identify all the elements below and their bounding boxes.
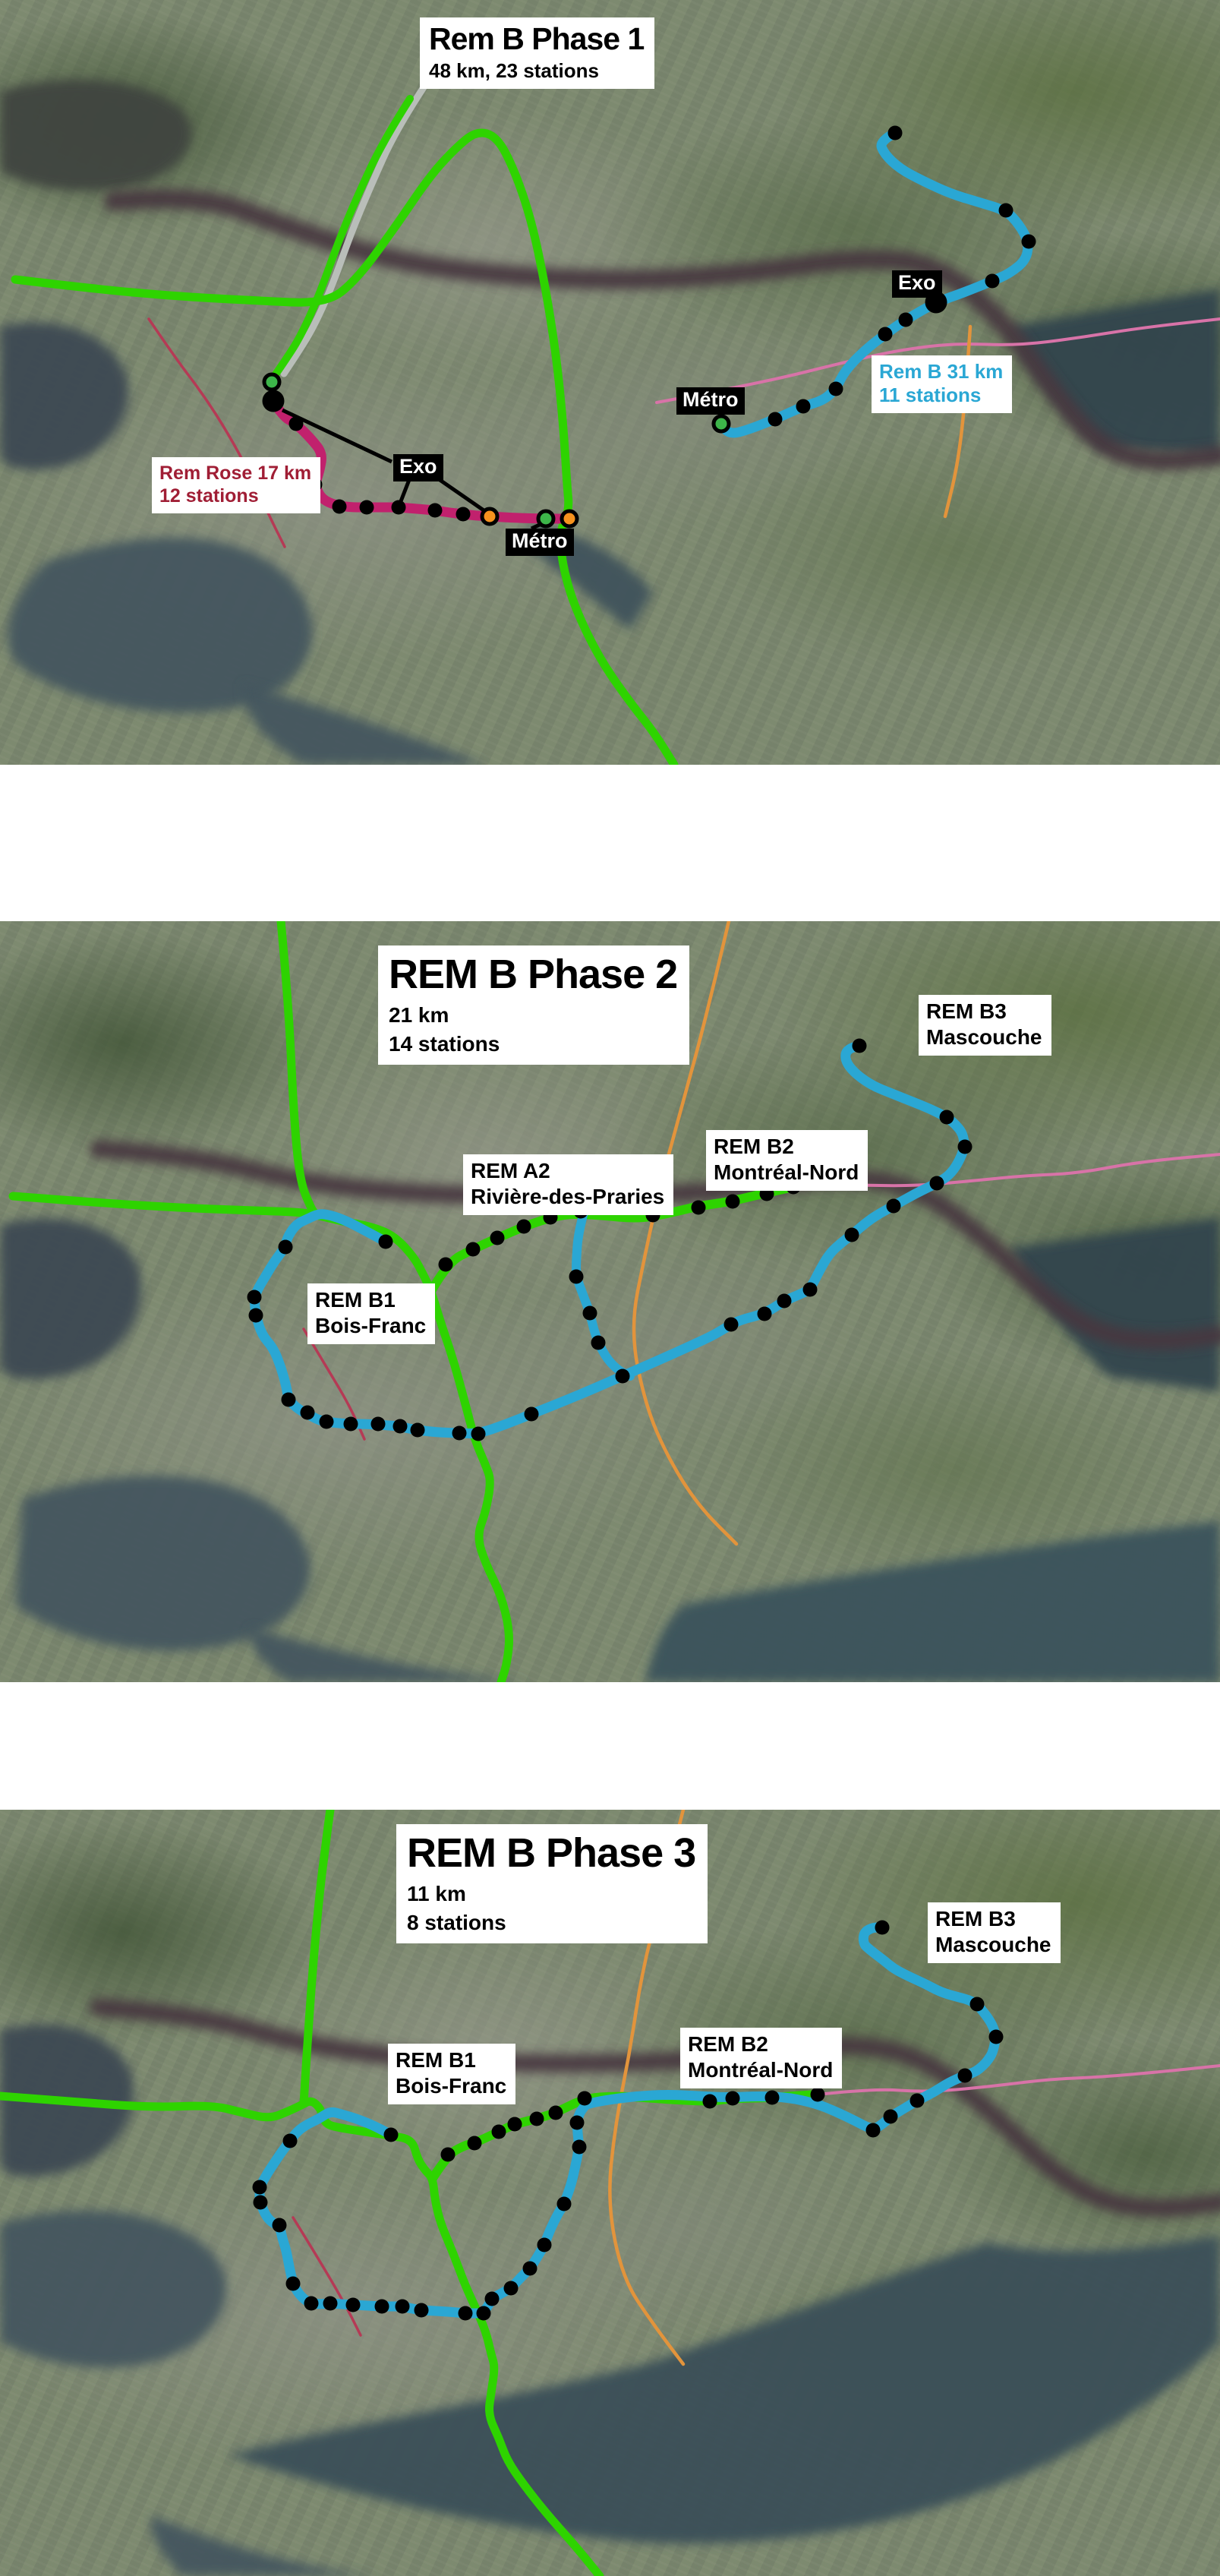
station-dot [254,2196,268,2210]
station-dot [796,399,811,414]
station-dot [466,1242,481,1257]
route-rem-b-cyan-connector [576,1201,630,1376]
station-dot [323,2297,338,2311]
station-dot [468,2136,482,2151]
station-dot [249,1309,263,1323]
station-dot [845,1228,859,1242]
station-dot [591,1336,606,1350]
station-dot [887,1199,901,1214]
label-rem-b2-montreal-nord-line-0: REM B2 [714,1134,859,1160]
label-rem-b-31km-line-1: 11 stations [879,384,1003,407]
station-dot [985,274,1000,289]
label-rem-a2-riviere-des-praries-line-1: Rivière-des-Praries [471,1184,664,1210]
station-dot [333,500,347,514]
label-exo-center: Exo [393,454,443,481]
water-body [15,1476,311,1651]
label-rem-rose-17km: Rem Rose 17 km12 stations [152,457,320,513]
label-rem-b2-montreal-nord: REM B2Montréal-Nord [680,2028,842,2088]
station-dot [777,1294,792,1309]
station-dot [393,1419,408,1434]
station-dot [811,2088,825,2102]
station-dot [477,2306,491,2321]
label-rem-b1-bois-franc: REM B1Bois-Franc [388,2044,515,2104]
station-dot [572,2140,587,2155]
label-rem-b1-bois-franc-line-1: Bois-Franc [396,2073,506,2099]
exo-crimson-line [293,2218,361,2335]
station-dot [583,1306,597,1321]
title-phase-3-line-0: REM B Phase 3 [407,1829,695,1878]
station-dot [384,2128,399,2142]
station-dot [930,1176,944,1191]
title-phase-3-line-1: 11 km [407,1880,695,1907]
water-body [243,683,486,765]
label-rem-rose-17km-line-0: Rem Rose 17 km [159,462,311,485]
title-phase-1: Rem B Phase 148 km, 23 stations [420,17,654,89]
route-rem-b2-green [433,2095,818,2178]
station-dot [411,1423,425,1438]
station-dot [320,1415,334,1429]
label-rem-rose-17km-line-1: 12 stations [159,485,311,507]
station-dot [958,1140,973,1154]
map-rem-b-phase-1: Rem B Phase 148 km, 23 stationsExoRem B … [0,0,1220,765]
water-body [151,2516,380,2576]
station-dot [441,2148,456,2162]
route-metro-green-top-stub [304,1810,330,2104]
label-metro-center-line-0: Métro [512,529,568,553]
label-rem-b3-mascouche-line-1: Mascouche [935,1932,1051,1958]
title-phase-3-line-2: 8 stations [407,1909,695,1936]
station-dot [247,1290,262,1305]
water-body [8,538,312,713]
station-dot [439,1258,453,1272]
water-body [250,1627,531,1682]
station-dot [371,1417,386,1432]
station-dot [899,313,913,327]
station-dot [508,2117,522,2132]
title-phase-3: REM B Phase 311 km8 stations [396,1824,708,1943]
station-dot [724,1318,739,1332]
station-dot [492,2125,506,2139]
station-dot [1022,235,1036,249]
station-dot [829,382,843,396]
label-rem-b3-mascouche-line-1: Mascouche [926,1024,1042,1050]
station-dot [304,2297,319,2311]
station-dot [485,2292,500,2306]
label-rem-b3-mascouche: REM B3Mascouche [919,995,1051,1056]
station-dot [279,1240,293,1255]
station-dot [726,2091,740,2106]
station-dot [549,2106,563,2120]
label-rem-b3-mascouche-line-0: REM B3 [935,1906,1051,1932]
station-dot [504,2281,519,2296]
station-dot [888,126,903,140]
station-dot [282,1393,296,1407]
station-dot [578,2091,592,2106]
station-dot [692,1201,706,1215]
station-dot [396,2300,410,2314]
station-dot [459,2306,473,2321]
station-dot [490,1231,505,1245]
station-dot [875,1921,890,1935]
station-dot [569,1270,584,1284]
station-dot [523,2262,537,2276]
metro-station-dot [714,416,729,431]
station-dot [537,2238,552,2252]
label-rem-b3-mascouche: REM B3Mascouche [928,1902,1061,1963]
station-dot [253,2180,267,2195]
station-dot [878,327,893,342]
title-phase-2: REM B Phase 221 km14 stations [378,945,689,1065]
page: Rem B Phase 148 km, 23 stationsExoRem B … [0,0,1220,2576]
station-dot [726,1195,740,1209]
station-dot [452,1426,467,1441]
station-dot [989,2030,1004,2044]
station-dot [392,500,406,515]
station-dot [344,1417,358,1432]
label-rem-a2-riviere-des-praries-line-0: REM A2 [471,1158,664,1184]
station-dot [375,2300,389,2314]
station-dot [346,2298,361,2312]
station-dot [530,2112,544,2126]
label-rem-a2-riviere-des-praries: REM A2Rivière-des-Praries [463,1154,673,1215]
title-phase-2-line-2: 14 stations [389,1031,677,1057]
metro-station-dot [264,374,279,390]
station-dot [703,2095,717,2109]
label-rem-b2-montreal-nord-line-0: REM B2 [688,2031,833,2057]
exo-pink-line [818,2066,1220,2095]
exo-station-dot [562,511,577,526]
label-exo-northeast-line-0: Exo [898,270,936,295]
title-phase-2-line-0: REM B Phase 2 [389,950,677,999]
label-exo-center-line-0: Exo [399,454,437,478]
metro-station-dot [538,511,553,526]
station-dot [415,2303,429,2318]
water-body [645,1521,1220,1682]
station-dot [958,2069,973,2083]
route-rem-b-cyan-loop [255,1046,964,1434]
station-dot [289,417,304,431]
station-dot [517,1220,531,1234]
station-dot [557,2197,572,2211]
station-dot [940,1110,954,1125]
station-dot [853,1039,867,1053]
label-metro-northeast: Métro [676,387,745,415]
label-rem-b2-montreal-nord: REM B2Montréal-Nord [706,1130,868,1191]
station-dot [999,204,1014,218]
station-dot [525,1407,539,1422]
station-dot [765,2091,780,2105]
station-dot [970,1997,985,2012]
label-rem-b1-bois-franc-line-0: REM B1 [315,1287,426,1313]
label-rem-b2-montreal-nord-line-1: Montréal-Nord [688,2057,833,2083]
station-dot [283,2134,298,2148]
label-rem-b1-bois-franc: REM B1Bois-Franc [307,1283,435,1344]
water-body [0,322,129,469]
water-body [0,2211,226,2368]
station-dot [286,2277,301,2291]
station-dot [379,1235,393,1249]
label-metro-center: Métro [506,529,574,556]
station-dot [301,1406,315,1420]
station-dot [884,2110,898,2124]
station-dot [273,2218,287,2233]
label-metro-northeast-line-0: Métro [683,387,739,412]
map-rem-b-phase-2: REM B Phase 221 km14 stationsREM B3Masco… [0,921,1220,1682]
water-body [228,2235,1220,2543]
station-dot [428,504,443,518]
label-rem-b1-bois-franc-line-1: Bois-Franc [315,1313,426,1339]
title-phase-1-line-0: Rem B Phase 1 [429,21,644,58]
label-rem-b-31km-line-0: Rem B 31 km [879,360,1003,384]
label-rem-b-31km: Rem B 31 km11 stations [872,355,1012,413]
station-dot-large [263,390,285,412]
title-phase-1-line-1: 48 km, 23 stations [429,59,644,83]
station-dot [768,412,783,427]
station-dot [616,1369,630,1384]
label-rem-b1-bois-franc-line-0: REM B1 [396,2047,506,2073]
station-dot [758,1307,772,1321]
station-dot [471,1427,486,1441]
label-rem-b2-montreal-nord-line-1: Montréal-Nord [714,1160,859,1185]
station-dot [360,500,374,515]
station-dot [866,2123,881,2138]
station-dot [803,1283,818,1297]
map-rem-b-phase-3: REM B Phase 311 km8 stationsREM B3Mascou… [0,1810,1220,2576]
water-body [0,1219,141,1380]
station-dot [910,2094,925,2108]
label-rem-b3-mascouche-line-0: REM B3 [926,999,1042,1024]
exo-station-dot [482,509,497,524]
station-dot [570,2116,585,2130]
station-dot [456,507,471,522]
map-canvas-phase-1 [0,0,1220,765]
water-body [0,80,191,191]
title-phase-2-line-1: 21 km [389,1002,677,1028]
label-exo-northeast: Exo [892,270,942,298]
